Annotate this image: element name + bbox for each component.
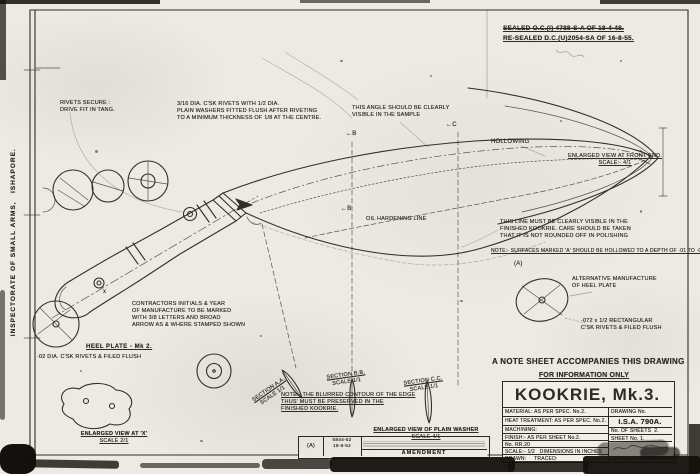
agency-vertical-title: INSPECTORATE OF SMALL ARMS, ISHAPORE. [10,112,18,372]
note-hollowed-surfaces: NOTE:- SURFACES MARKED 'A' SHOULD BE HOL… [491,248,700,255]
note-blurred-edge: NOTE:- THE BLURRED CONTOUR OF THE EDGE T… [281,392,415,413]
amendment-ref: 5844-52 18-8-52 [325,438,359,450]
view-label-at-x: ENLARGED VIEW AT 'X' SCALE 2/1 [58,431,170,445]
label-heel-plate: HEEL PLATE - Mk 2. [86,344,152,352]
note-rect-rivets: ·072 x 1/2 RECTANGULAR C'SK RIVETS & FIL… [581,318,662,332]
tb-drawing-no-value: I.S.A. 790A. [609,417,671,427]
marker-x: x [103,289,106,297]
note-washers: 3/16 DIA. C'SK RIVETS WITH 1/2 DIA. PLAI… [177,101,321,122]
amendment-table: (A) 5844-52 18-8-52 AMENDMENT [298,436,490,459]
label-oil-hardening-line: OIL HARDENING LINE [366,216,427,223]
rivet-washer-details [33,161,231,429]
marker-c-top: ←C [446,122,457,130]
tb-drawing-no-label: DRAWING No. [611,409,671,416]
tb-heat-treatment: HEAT TREATMENT: AS PER SPEC. No.2. [505,418,606,425]
info-only-banner: FOR INFORMATION ONLY [514,371,654,380]
note-angle: THIS ANGLE SHOULD BE CLEARLY VISIBLE IN … [352,105,450,119]
marker-b-top: ←B [346,131,356,139]
marker-a-surface: (A) [514,261,523,269]
drawing-sheet: INSPECTORATE OF SMALL ARMS, ISHAPORE. SE… [0,0,700,474]
amendment-index: (A) [301,443,321,450]
seal-note-line2: RE-SEALED D.C.(U)2054-SA OF 16-8-55. [503,35,634,43]
view-label-front-end: ENLARGED VIEW AT FRONT END. SCALE:- 4/1 [556,153,674,167]
marker-b-mid: ←B [341,206,351,214]
seal-note-line1: SEALED O.C.(I) 4788-S-A OF 18-4-48. [503,25,624,33]
note-edge-line: THIS LINE MUST BE CLEARLY VISIBLE IN THE… [500,219,631,240]
note-rivets: RIVETS SECURE : DRIVE FIT IN TANG. [60,100,115,114]
note-sheet-banner: A NOTE SHEET ACCOMPANIES THIS DRAWING [492,357,685,367]
tb-material: MATERIAL: AS PER SPEC. No.2. [505,409,606,416]
drawing-title: KOOKRIE, Mk.3. [503,382,672,408]
amendment-description-illegible [363,439,485,448]
note-alt-heel: ALTERNATIVE MANUFACTURE OF HEEL PLATE [572,276,657,290]
label-heel-rivets: ·02 DIA. C'SK RIVETS & FILED FLUSH [37,354,141,361]
note-contractors: CONTRACTORS INITIALS & YEAR OF MANUFACTU… [132,301,245,330]
label-hollowing: HOLLOWING [491,139,529,147]
